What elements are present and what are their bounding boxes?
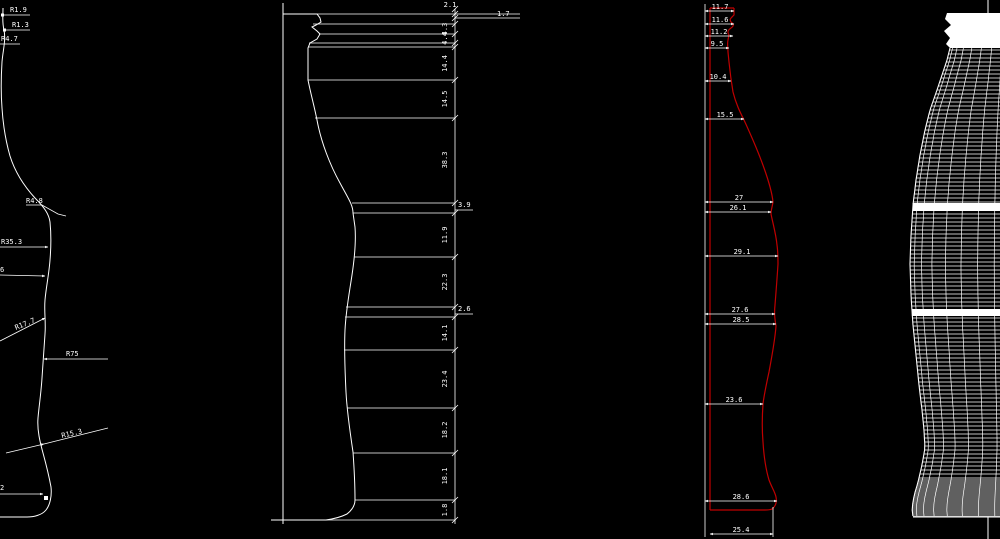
- radius-callout-label: R75: [66, 350, 79, 358]
- grip-point: [44, 496, 48, 500]
- vertical-dim-label: 3.9: [458, 201, 471, 209]
- vertical-dim-label: 2.6: [458, 305, 471, 313]
- radius-callout-label-partial: 2: [0, 484, 4, 492]
- width-dim-label: 27.6: [732, 306, 749, 314]
- vertical-dim-label: 38.3: [441, 152, 449, 169]
- cad-drawing-canvas[interactable]: R1.9 R1.3 R4.7 R4.8 R35.3 6 R17.7 R75 R1…: [0, 0, 1000, 539]
- wireframe-neck-band: [944, 13, 1000, 48]
- vertical-dim-label: 23.4: [441, 371, 449, 388]
- mesh-line: [913, 203, 1000, 211]
- red-profile-curve: [710, 8, 778, 510]
- view-red-profile-width-dims: 11.7 11.6 11.2 9.5 10.4 15.5 27 26.1 29.…: [705, 3, 778, 537]
- vertical-dim-label: 14.5: [441, 91, 449, 108]
- vertical-dim-label: 14.4: [441, 55, 449, 72]
- width-dim-label: 26.1: [730, 204, 747, 212]
- vertical-dim-label: 2.1: [444, 1, 457, 9]
- leader-line: [0, 275, 45, 276]
- radius-callout-label: R4.8: [26, 197, 43, 205]
- mesh-line: [912, 309, 1000, 316]
- view-profile-radius-callouts: R1.9 R1.3 R4.7 R4.8 R35.3 6 R17.7 R75 R1…: [0, 6, 108, 517]
- radius-callout-label: R1.9: [10, 6, 27, 14]
- vertical-dim-label: 18.2: [441, 422, 449, 439]
- vertical-dim-label: 1.8: [441, 504, 449, 517]
- width-dim-label: 28.5: [733, 316, 750, 324]
- width-dim-lines: [705, 11, 778, 537]
- bottle-outline: [271, 14, 355, 520]
- width-dim-label: 23.6: [726, 396, 743, 404]
- width-dim-label: 9.5: [711, 40, 724, 48]
- profile-curve: [0, 8, 51, 517]
- grip-point: [1, 14, 4, 17]
- radius-callout-label: R35.3: [1, 238, 22, 246]
- vertical-dim-label: 18.1: [441, 468, 449, 485]
- view-outline-vertical-dims: 2.1 1.7 4.3 4.4 14.4 14.5 38.3 3.9 11.9 …: [271, 1, 520, 524]
- width-dim-label: 11.7: [712, 3, 729, 11]
- radius-callout-label: R1.3: [12, 21, 29, 29]
- grip-point: [3, 29, 6, 32]
- vertical-dim-label: 4.4: [441, 32, 449, 45]
- width-dim-label: 29.1: [734, 248, 751, 256]
- width-dim-label: 10.4: [710, 73, 727, 81]
- wireframe-mesh: [910, 48, 1000, 516]
- width-dim-label: 28.6: [733, 493, 750, 501]
- width-dim-label: 27: [735, 194, 743, 202]
- radius-callout-label: R4.7: [1, 35, 18, 43]
- vertical-dim-label: 22.3: [441, 274, 449, 291]
- leader-line: [26, 205, 66, 216]
- radius-callout-label-partial: 6: [0, 266, 4, 274]
- view-wireframe-3d: [910, 0, 1000, 539]
- leader-line: [6, 444, 44, 453]
- vertical-dim-label: 11.9: [441, 227, 449, 244]
- radius-callout-label: R15.3: [61, 427, 83, 440]
- radius-callout-label: R17.7: [14, 317, 37, 332]
- width-dim-label: 11.6: [712, 16, 729, 24]
- vertical-dim-label: 1.7: [497, 10, 510, 18]
- vertical-dim-label: 14.1: [441, 325, 449, 342]
- width-dim-label: 15.5: [717, 111, 734, 119]
- width-dim-label: 25.4: [733, 526, 750, 534]
- width-dim-label: 11.2: [711, 28, 728, 36]
